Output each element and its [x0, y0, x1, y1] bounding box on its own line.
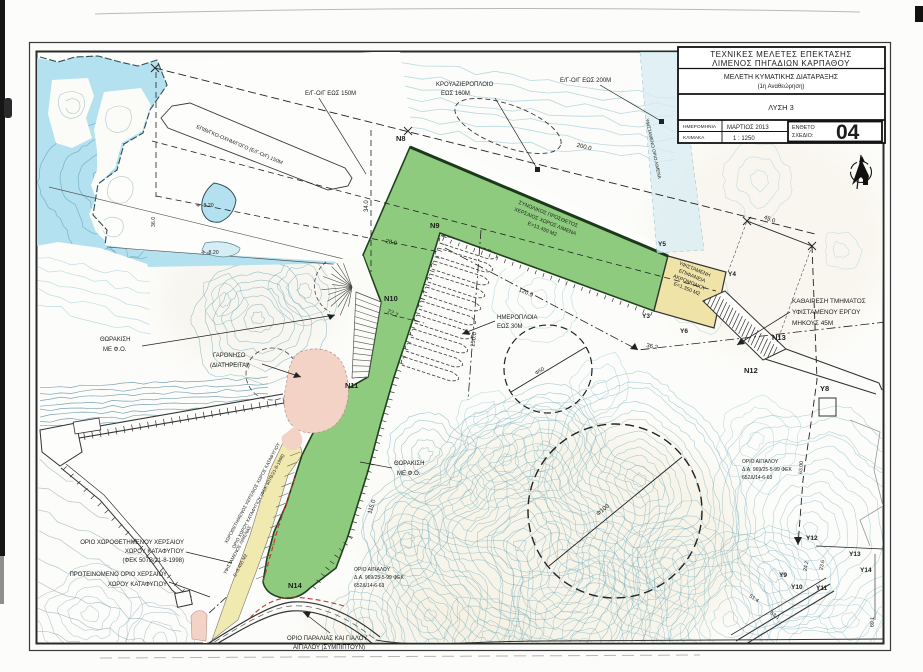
- svg-text:36.0: 36.0: [151, 217, 157, 227]
- svg-text:Υ5: Υ5: [658, 241, 666, 248]
- svg-text:✛ -8.20: ✛ -8.20: [201, 250, 219, 256]
- svg-text:ΜΕΛΕΤΗ ΚΥΜΑΤΙΚΗΣ ΔΙΑΤΑΡΑΞΗΣ: ΜΕΛΕΤΗ ΚΥΜΑΤΙΚΗΣ ΔΙΑΤΑΡΑΞΗΣ: [724, 74, 839, 81]
- svg-text:Δ.Α. 969/25-5-99 ΦΕΚ: Δ.Α. 969/25-5-99 ΦΕΚ: [354, 575, 405, 581]
- svg-text:34.0: 34.0: [364, 200, 370, 212]
- svg-text:ΗΜΕΡΟΜΗΝΙΑ: ΗΜΕΡΟΜΗΝΙΑ: [683, 124, 717, 130]
- svg-text:ΘΩΡΑΚΙΣΗ: ΘΩΡΑΚΙΣΗ: [394, 461, 424, 467]
- svg-text:ΑΙΓΙΑΛΟΥ (ΣΥΜΠΙΠΤΟΥΝ): ΑΙΓΙΑΛΟΥ (ΣΥΜΠΙΠΤΟΥΝ): [293, 645, 365, 651]
- svg-text:04: 04: [836, 121, 860, 144]
- svg-text:Ν9: Ν9: [430, 221, 440, 230]
- svg-text:ΟΡΙΟ ΧΩΡΟΘΕΤΗΜΕΝΟΥ ΧΕΡΣΑΙΟΥ: ΟΡΙΟ ΧΩΡΟΘΕΤΗΜΕΝΟΥ ΧΕΡΣΑΙΟΥ: [80, 540, 184, 546]
- svg-text:ΥΦΙΣΤΑΜΕΝΟΥ ΕΡΓΟΥ: ΥΦΙΣΤΑΜΕΝΟΥ ΕΡΓΟΥ: [792, 309, 861, 316]
- svg-text:ΓΑΡΟΝΗΣΟ: ΓΑΡΟΝΗΣΟ: [213, 353, 246, 359]
- svg-text:Υ6: Υ6: [680, 328, 688, 335]
- svg-text:ΜΗΚΟΥΣ 45Μ: ΜΗΚΟΥΣ 45Μ: [792, 320, 833, 327]
- svg-text:ΣΧΕΔΙΟ:: ΣΧΕΔΙΟ:: [792, 133, 813, 139]
- svg-text:Υ14: Υ14: [860, 567, 872, 574]
- svg-text:Υ3: Υ3: [642, 313, 650, 320]
- svg-text:ΜΕ Φ.Ο.: ΜΕ Φ.Ο.: [397, 471, 421, 477]
- svg-text:ΟΡΙΟ ΑΙΓΙΑΛΟΥ: ΟΡΙΟ ΑΙΓΙΑΛΟΥ: [354, 567, 391, 573]
- svg-text:ΜΑΡΤΙΟΣ 2013: ΜΑΡΤΙΟΣ 2013: [727, 125, 769, 131]
- svg-text:Υ11: Υ11: [816, 585, 828, 592]
- svg-text:ΧΩΡΟΥ ΚΑΤΑΦΥΓΙΟΥ: ΧΩΡΟΥ ΚΑΤΑΦΥΓΙΟΥ: [108, 582, 167, 588]
- svg-text:ΠΡΟΤΕΙΝΟΜΕΝΟ ΟΡΙΟ ΧΕΡΣΑΙΟΥ: ΠΡΟΤΕΙΝΟΜΕΝΟ ΟΡΙΟ ΧΕΡΣΑΙΟΥ: [69, 572, 167, 578]
- svg-text:Ν12: Ν12: [744, 366, 758, 375]
- svg-text:Υ9: Υ9: [779, 572, 787, 579]
- svg-text:ΚΑΘΑΙΡΕΣΗ ΤΜΗΜΑΤΟΣ: ΚΑΘΑΙΡΕΣΗ ΤΜΗΜΑΤΟΣ: [792, 298, 866, 305]
- svg-text:Ν14: Ν14: [288, 581, 303, 590]
- svg-text:Ν13: Ν13: [772, 333, 786, 342]
- svg-text:1 : 1250: 1 : 1250: [733, 136, 755, 142]
- svg-text:Ε/Γ-Ο/Γ ΕΩΣ 200Μ: Ε/Γ-Ο/Γ ΕΩΣ 200Μ: [560, 78, 611, 84]
- svg-text:✛ -8.20: ✛ -8.20: [196, 203, 214, 209]
- svg-text:652Δ/14-6-63: 652Δ/14-6-63: [742, 475, 773, 481]
- svg-text:ΛΙΜΕΝΟΣ ΠΗΓΑΔΙΩΝ ΚΑΡΠΑΘΟΥ: ΛΙΜΕΝΟΣ ΠΗΓΑΔΙΩΝ ΚΑΡΠΑΘΟΥ: [712, 59, 850, 68]
- svg-text:(ΔΙΑΤΗΡΕΙΤΑΙ): (ΔΙΑΤΗΡΕΙΤΑΙ): [210, 363, 250, 369]
- svg-text:Υ4: Υ4: [728, 271, 736, 278]
- svg-text:63.00: 63.00: [798, 461, 805, 475]
- svg-text:ΕΩΣ 160Μ: ΕΩΣ 160Μ: [441, 91, 470, 97]
- svg-text:ΟΡΙΟ ΑΙΓΙΑΛΟΥ: ΟΡΙΟ ΑΙΓΙΑΛΟΥ: [742, 459, 779, 465]
- svg-text:ΤΕΧΝΙΚΕΣ ΜΕΛΕΤΕΣ ΕΠΕΚΤΑΣΗΣ: ΤΕΧΝΙΚΕΣ ΜΕΛΕΤΕΣ ΕΠΕΚΤΑΣΗΣ: [710, 50, 852, 59]
- svg-text:ΚΡΟΥΑΖΙΕΡΟΠΛΟΙΟ: ΚΡΟΥΑΖΙΕΡΟΠΛΟΙΟ: [436, 82, 494, 88]
- svg-text:Υ12: Υ12: [806, 535, 818, 542]
- svg-text:Υ13: Υ13: [849, 551, 861, 558]
- svg-text:Ν8: Ν8: [396, 134, 406, 143]
- svg-text:ΗΜΕΡΟΠΛΟΙΑ: ΗΜΕΡΟΠΛΟΙΑ: [497, 315, 538, 321]
- svg-text:Υ8: Υ8: [820, 384, 829, 393]
- svg-text:ΛΥΣΗ 3: ΛΥΣΗ 3: [768, 103, 793, 112]
- svg-text:ΘΩΡΑΚΙΣΗ: ΘΩΡΑΚΙΣΗ: [100, 337, 130, 343]
- svg-text:ΕΩΣ 30Μ: ΕΩΣ 30Μ: [497, 324, 523, 330]
- svg-text:(ΦΕΚ 507Β/21-8-1998): (ΦΕΚ 507Β/21-8-1998): [123, 558, 185, 564]
- svg-text:(1η Αναθεώρηση): (1η Αναθεώρηση): [758, 84, 805, 90]
- svg-text:ΟΡΙΟ ΠΑΡΑΛΙΑΣ ΚΑΙ ΓΙΑΛΟΥ: ΟΡΙΟ ΠΑΡΑΛΙΑΣ ΚΑΙ ΓΙΑΛΟΥ: [287, 636, 367, 642]
- svg-text:Ε/Γ-Ο/Γ ΕΩΣ 150Μ: Ε/Γ-Ο/Γ ΕΩΣ 150Μ: [305, 91, 356, 97]
- svg-text:ΚΛΙΜΑΚΑ: ΚΛΙΜΑΚΑ: [683, 135, 705, 141]
- svg-text:69.1: 69.1: [869, 617, 876, 628]
- svg-text:ΜΕ Φ.Ο.: ΜΕ Φ.Ο.: [103, 347, 127, 353]
- svg-text:Ν10: Ν10: [384, 294, 398, 303]
- svg-text:Ν11: Ν11: [345, 381, 358, 390]
- svg-text:ΧΩΡΟΥ ΚΑΤΑΦΥΓΙΟΥ: ΧΩΡΟΥ ΚΑΤΑΦΥΓΙΟΥ: [125, 549, 184, 555]
- svg-text:ΕΝΘΕΤΟ: ΕΝΘΕΤΟ: [792, 125, 815, 131]
- svg-text:Δ.Α. 969/25-5-99 ΦΕΚ: Δ.Α. 969/25-5-99 ΦΕΚ: [742, 467, 793, 473]
- svg-text:652Δ/14-6-63: 652Δ/14-6-63: [354, 583, 385, 589]
- svg-text:Υ10: Υ10: [791, 584, 803, 591]
